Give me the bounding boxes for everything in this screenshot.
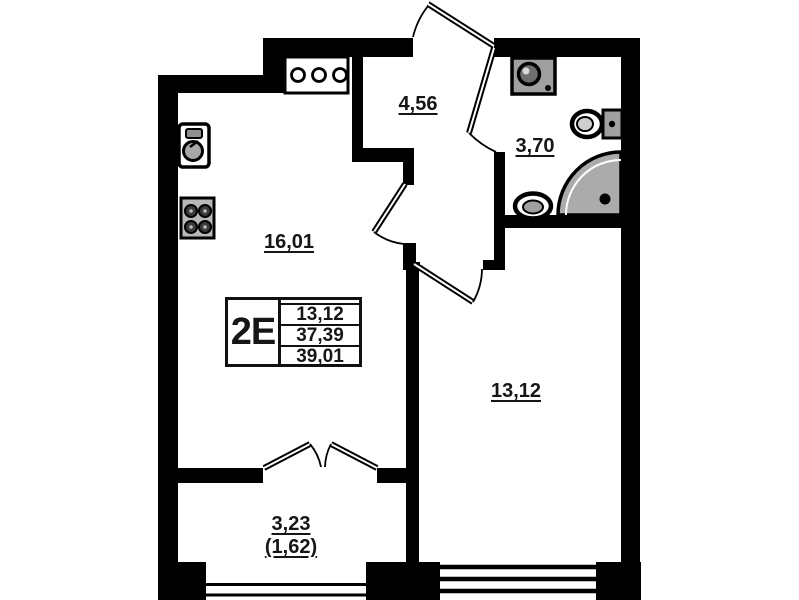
unit-type-label: 2E: [228, 300, 281, 364]
wall-segment: [352, 148, 414, 162]
shower-icon: [558, 152, 621, 215]
living-room-door-icon: [374, 184, 405, 244]
toilet-icon: [572, 110, 622, 138]
wall-segment: [158, 75, 178, 600]
kitchen-living-area-label: 16,01: [264, 231, 314, 254]
floor-plan-canvas: 16,01 4,56 3,70 13,12 3,23 (1,62) 2E 13,…: [0, 0, 799, 600]
wall-segment: [494, 38, 640, 57]
wall-segment: [263, 38, 413, 57]
wall-segment: [406, 562, 440, 600]
wall-segment: [406, 268, 419, 562]
vent-shaft-icon: [285, 57, 348, 93]
balcony-glazing: [206, 585, 366, 596]
wall-segment: [494, 215, 622, 228]
floor-plan: [0, 0, 799, 600]
unit-areas: 13,12 37,39 39,01: [281, 300, 359, 364]
wall-segment: [158, 75, 280, 93]
wall-segment: [352, 57, 363, 152]
bedroom-window: [440, 567, 596, 591]
wall-segment: [596, 562, 641, 600]
apartment-area-value: 37,39: [281, 324, 359, 345]
hallway-area-label: 4,56: [399, 93, 438, 116]
wall-segment: [178, 468, 263, 483]
bedroom-door-icon: [414, 264, 482, 302]
balcony-area-value: 3,23: [265, 513, 317, 536]
stove-icon: [181, 198, 214, 238]
wall-segment: [158, 562, 206, 600]
bathroom-area-label: 3,70: [516, 135, 555, 158]
wall-segment: [494, 152, 505, 264]
bathroom-sink-icon: [515, 194, 551, 219]
balcony-area-label: 3,23 (1,62): [265, 513, 317, 559]
total-area-value: 39,01: [281, 345, 359, 366]
washing-machine-icon: [512, 58, 555, 94]
wall-segment: [403, 160, 414, 185]
balcony-reduced-area-value: (1,62): [265, 536, 317, 559]
wall-segment: [377, 468, 419, 483]
bathroom-door-icon: [469, 48, 496, 152]
entrance-door-icon: [413, 4, 494, 46]
living-room-area-value: 13,12: [281, 303, 359, 324]
bedroom-area-label: 13,12: [491, 380, 541, 403]
kitchen-sink-icon: [179, 124, 209, 167]
balcony-door-icon: [264, 444, 377, 468]
wall-segment: [621, 38, 640, 600]
unit-info-box: 2E 13,12 37,39 39,01: [225, 297, 362, 367]
